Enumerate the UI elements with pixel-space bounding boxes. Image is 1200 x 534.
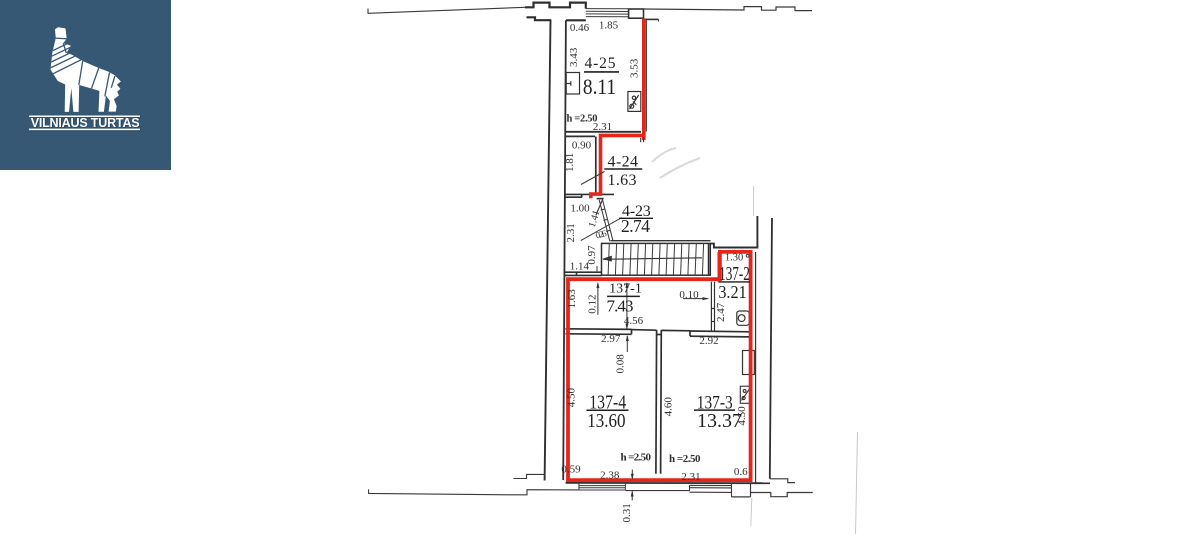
svg-text:4.60: 4.60 — [662, 397, 674, 417]
svg-text:1.81: 1.81 — [564, 153, 576, 172]
svg-text:0.31: 0.31 — [621, 503, 633, 522]
svg-text:4.50: 4.50 — [566, 388, 578, 408]
svg-text:2.92: 2.92 — [699, 335, 718, 347]
svg-text:137-2: 137-2 — [719, 262, 750, 284]
svg-text:1.85: 1.85 — [599, 20, 619, 32]
svg-text:3.43: 3.43 — [568, 47, 580, 67]
svg-text:1.14: 1.14 — [570, 260, 590, 272]
svg-text:4.56: 4.56 — [624, 315, 644, 327]
svg-text:0.6: 0.6 — [734, 466, 748, 478]
svg-text:0.10: 0.10 — [679, 289, 699, 301]
svg-text:8.11: 8.11 — [583, 76, 616, 99]
svg-text:1.00: 1.00 — [570, 202, 590, 214]
svg-text:0.08: 0.08 — [615, 354, 627, 374]
svg-text:1.30: 1.30 — [725, 253, 743, 264]
svg-text:1.63: 1.63 — [608, 172, 637, 189]
svg-text:0.90: 0.90 — [572, 139, 592, 151]
svg-text:h =2.50: h =2.50 — [669, 453, 701, 465]
svg-text:0.12: 0.12 — [587, 295, 599, 314]
svg-text:4-25: 4-25 — [585, 55, 616, 72]
svg-text:2.31: 2.31 — [565, 223, 577, 242]
svg-text:4.50: 4.50 — [736, 406, 748, 426]
svg-text:h =2.50: h =2.50 — [621, 452, 652, 464]
svg-text:3.53: 3.53 — [629, 58, 641, 78]
svg-text:2.31: 2.31 — [593, 121, 612, 133]
svg-text:2.97: 2.97 — [601, 333, 621, 345]
svg-text:4-24: 4-24 — [608, 153, 639, 170]
svg-text:VILNIAUS TURTAS: VILNIAUS TURTAS — [31, 116, 140, 130]
svg-text:2.74: 2.74 — [621, 216, 650, 236]
svg-text:7.43: 7.43 — [607, 297, 634, 316]
svg-text:1.63: 1.63 — [566, 289, 578, 309]
svg-text:2.47: 2.47 — [715, 302, 727, 322]
svg-text:0.46: 0.46 — [570, 22, 590, 34]
svg-text:13.60: 13.60 — [587, 410, 625, 433]
svg-text:2.38: 2.38 — [600, 470, 620, 482]
svg-text:0.59: 0.59 — [561, 464, 581, 476]
svg-text:2.31: 2.31 — [681, 471, 700, 483]
svg-text:3.21: 3.21 — [718, 282, 746, 302]
svg-text:137-1: 137-1 — [609, 282, 642, 297]
